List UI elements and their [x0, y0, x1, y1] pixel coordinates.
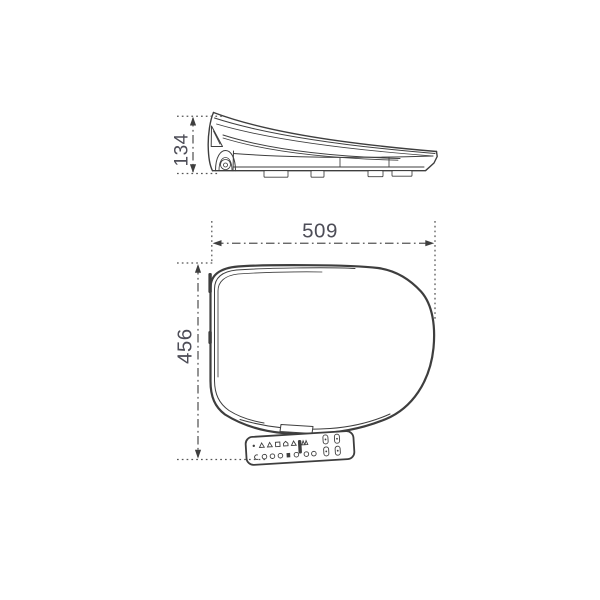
dimension-drawing-svg: 134 [0, 0, 600, 600]
technical-drawing-page: 134 [0, 0, 600, 600]
depth-dimension-label: 456 [174, 328, 197, 364]
foot-pad [392, 171, 412, 177]
side-back-separator [233, 151, 234, 171]
width-dimension-label: 509 [302, 220, 338, 243]
control-panel [245, 431, 355, 466]
height-dimension-label: 134 [172, 133, 193, 166]
panel-connector [280, 425, 313, 434]
foot-pad [368, 171, 383, 177]
page-background [0, 0, 600, 600]
left-edge-hinge-tick [208, 331, 211, 344]
left-edge-hinge-tick [208, 273, 211, 293]
foot-pad [264, 171, 288, 178]
button-icon [286, 453, 290, 458]
foot-pad [311, 171, 324, 178]
